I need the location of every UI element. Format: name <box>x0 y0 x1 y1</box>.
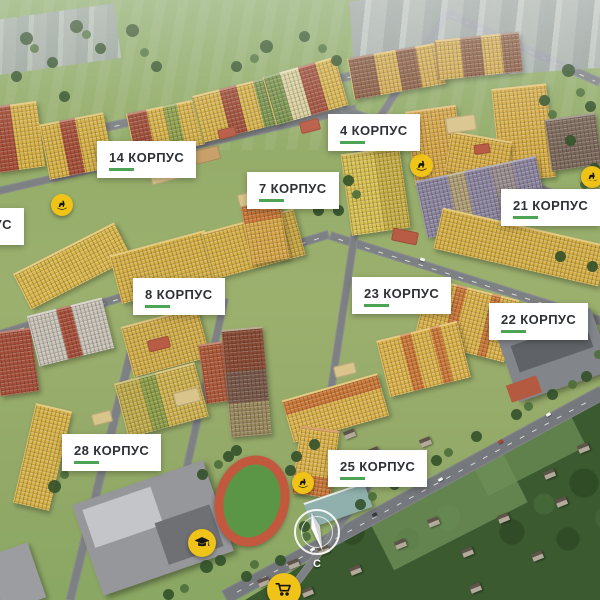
residential-complex-map: С <box>0 0 600 600</box>
building-label-25[interactable]: 25 КОРПУС <box>328 450 427 487</box>
sport-patch <box>391 227 419 245</box>
rocking-horse-icon <box>414 158 429 173</box>
playground-marker[interactable] <box>51 194 73 216</box>
label-underline <box>109 168 134 171</box>
building-label-text: КОРПУС <box>0 218 12 231</box>
building-label-7[interactable]: 7 КОРПУС <box>247 172 339 209</box>
building-label-text: 8 КОРПУС <box>145 288 213 301</box>
building-label-4[interactable]: 4 КОРПУС <box>328 114 420 151</box>
apartment-building <box>341 146 411 235</box>
label-underline <box>145 305 170 308</box>
playground-marker[interactable] <box>410 154 433 177</box>
graduation-cap-icon <box>193 534 211 552</box>
building-label-text: 25 КОРПУС <box>340 460 415 473</box>
compass-north-label: С <box>313 558 321 570</box>
tree-cluster <box>0 0 9 9</box>
label-underline <box>74 461 99 464</box>
shopping-cart-icon <box>273 579 295 600</box>
building-label-8[interactable]: 8 КОРПУС <box>133 278 225 315</box>
building-label-14[interactable]: 14 КОРПУС <box>97 141 196 178</box>
store-marker[interactable] <box>267 573 301 600</box>
building-label-21[interactable]: 21 КОРПУС <box>501 189 600 226</box>
apartment-building <box>27 297 114 366</box>
building-label-text: 23 КОРПУС <box>364 287 439 300</box>
building-label-unknown[interactable]: КОРПУС <box>0 208 24 245</box>
cottage <box>419 436 432 448</box>
apartment-building <box>376 321 471 397</box>
rocking-horse-icon <box>585 170 599 184</box>
compass: С <box>294 509 340 575</box>
playground-marker[interactable] <box>292 472 314 494</box>
label-underline <box>513 216 538 219</box>
building-label-text: 28 КОРПУС <box>74 444 149 457</box>
label-underline <box>259 199 284 202</box>
label-underline <box>501 330 526 333</box>
apartment-tower <box>221 326 271 437</box>
label-underline <box>340 141 365 144</box>
building-label-text: 7 КОРПУС <box>259 182 327 195</box>
civic-building <box>0 542 46 600</box>
parking-building <box>545 113 600 172</box>
building-label-28[interactable]: 28 КОРПУС <box>62 434 161 471</box>
building-label-text: 14 КОРПУС <box>109 151 184 164</box>
rocking-horse-icon <box>296 476 310 490</box>
stadium <box>205 447 299 554</box>
building-label-text: 21 КОРПУС <box>513 199 588 212</box>
building-label-23[interactable]: 23 КОРПУС <box>352 277 451 314</box>
cottage <box>343 428 356 440</box>
label-underline <box>340 477 365 480</box>
building-label-22[interactable]: 22 КОРПУС <box>489 303 588 340</box>
building-label-text: 4 КОРПУС <box>340 124 408 137</box>
building-label-text: 22 КОРПУС <box>501 313 576 326</box>
playground-marker[interactable] <box>581 166 600 188</box>
label-underline <box>364 304 389 307</box>
school-marker[interactable] <box>188 529 216 557</box>
rocking-horse-icon <box>55 198 69 212</box>
